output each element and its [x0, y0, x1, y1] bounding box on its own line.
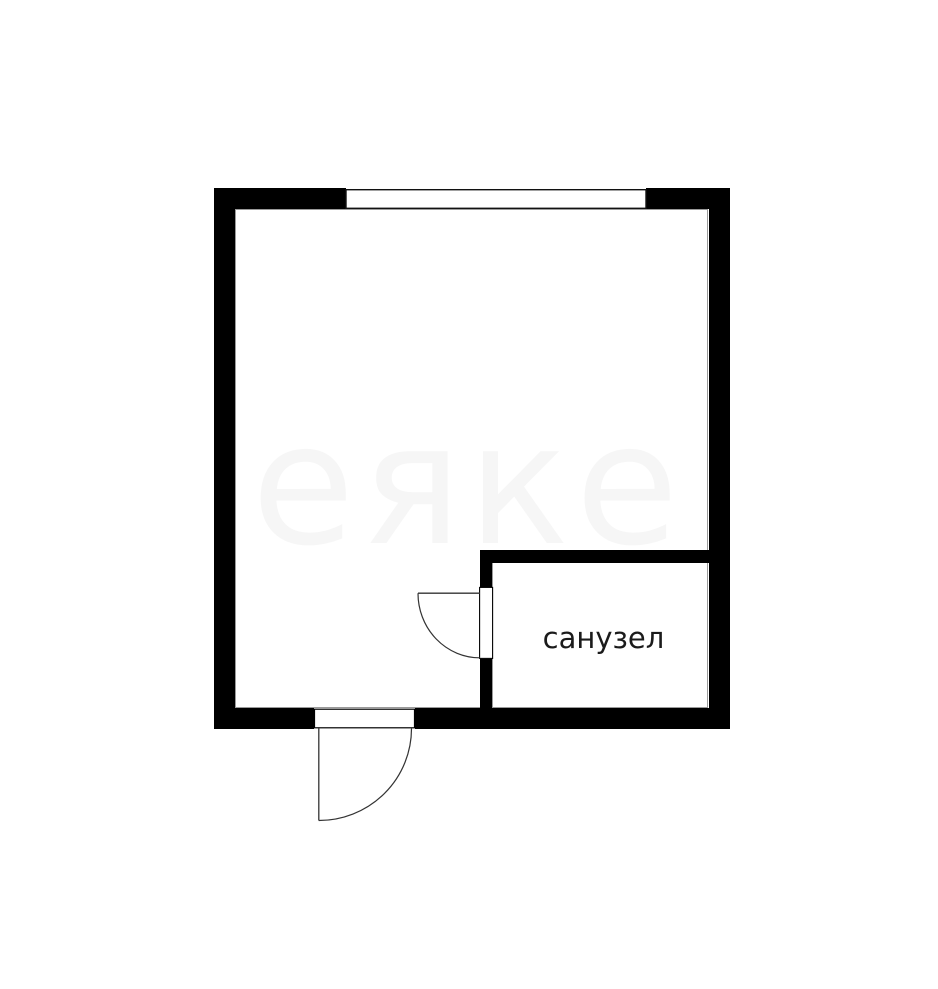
wall-bottom-right-segment	[415, 708, 730, 729]
wall-bottom-left-segment	[214, 708, 314, 729]
floorplan-canvas: еяке	[0, 0, 938, 989]
window	[346, 190, 646, 209]
bathroom-wall-left-upper	[480, 550, 492, 587]
bathroom-door-jamb	[480, 587, 493, 658]
room-label-bathroom: санузел	[543, 621, 665, 655]
wall-left	[214, 188, 235, 729]
wall-right	[709, 188, 730, 729]
entry-door-threshold	[315, 709, 415, 728]
bathroom-wall-left-lower	[480, 659, 492, 708]
bathroom-wall-top	[480, 550, 709, 563]
floorplan-svg: еяке	[0, 0, 938, 989]
